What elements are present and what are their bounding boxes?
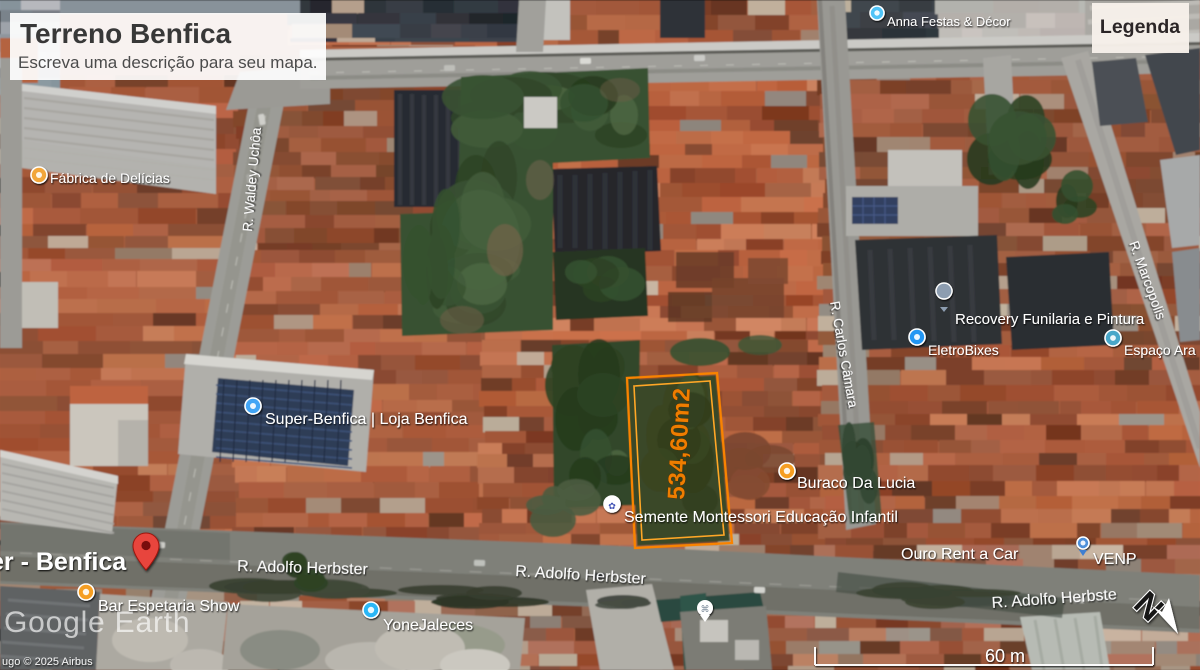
svg-text:er - Benfica: er - Benfica	[0, 548, 127, 576]
svg-text:YoneJaleces: YoneJaleces	[383, 617, 473, 634]
svg-text:Semente Montessori Educação In: Semente Montessori Educação Infantil	[624, 509, 898, 526]
svg-text:Espaço Ara: Espaço Ara	[1124, 342, 1196, 358]
svg-text:Ouro Rent a Car: Ouro Rent a Car	[901, 546, 1019, 563]
svg-text:✿: ✿	[608, 501, 616, 511]
svg-text:Escreva uma descrição para seu: Escreva uma descrição para seu mapa.	[18, 53, 318, 72]
svg-text:Buraco Da Lucia: Buraco Da Lucia	[797, 475, 915, 492]
svg-text:EletroBixes: EletroBixes	[928, 342, 999, 358]
svg-text:Google Earth: Google Earth	[4, 606, 190, 639]
svg-text:Legenda: Legenda	[1100, 16, 1180, 38]
svg-text:Fábrica de Delícias: Fábrica de Delícias	[50, 170, 170, 186]
svg-text:Super-Benfica | Loja Benfica: Super-Benfica | Loja Benfica	[265, 411, 468, 428]
svg-text:ugo © 2025 Airbus: ugo © 2025 Airbus	[2, 656, 93, 668]
svg-text:Anna Festas & Décor: Anna Festas & Décor	[887, 14, 1011, 29]
svg-text:⌘: ⌘	[701, 604, 710, 614]
svg-text:VENP: VENP	[1093, 551, 1137, 568]
svg-text:Recovery Funilaria e Pintura: Recovery Funilaria e Pintura	[955, 311, 1145, 328]
svg-text:R. Adolfo Herbster: R. Adolfo Herbster	[237, 558, 369, 578]
svg-text:Terreno Benfica: Terreno Benfica	[20, 18, 232, 49]
svg-text:60 m: 60 m	[985, 646, 1025, 666]
